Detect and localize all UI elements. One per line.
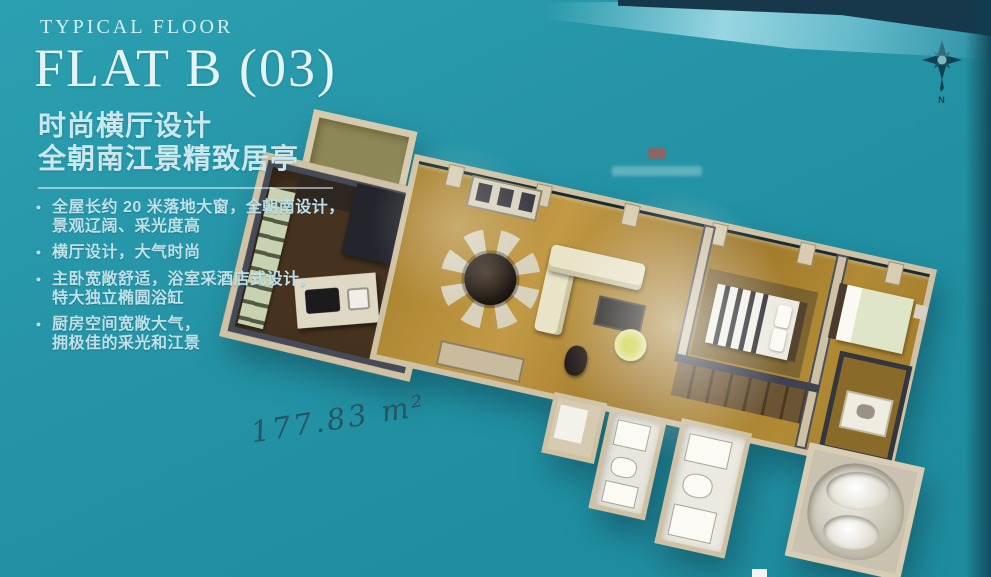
feature-list: • 全屋长约 20 米落地大窗，全朝南设计， 景观辽阔、采光度高 • 横厅设计，… [36, 198, 394, 353]
feature-text: 特大独立椭圆浴缸 [52, 289, 316, 308]
plan-nightstand [913, 304, 928, 320]
plan-bathtub [798, 455, 913, 570]
plan-window-pier [620, 203, 640, 228]
plan-accent-chair [611, 326, 649, 364]
plan-utility-block [541, 392, 607, 464]
eyebrow-label: TYPICAL FLOOR [40, 16, 394, 39]
feature-text: 景观辽阔、采光度高 [52, 217, 345, 236]
plan-master-tub-room [785, 442, 925, 577]
flat-title: FLAT B (03) [34, 41, 394, 95]
poster-photo: TYPICAL FLOOR FLAT B (03) 时尚横厅设计 全朝南江景精致… [0, 0, 991, 577]
feature-item: • 全屋长约 20 米落地大窗，全朝南设计， 景观辽阔、采光度高 [36, 198, 394, 236]
plan-planter [562, 344, 590, 378]
plan-bathroom-b [654, 418, 752, 559]
plan-dining-chairs [431, 220, 550, 339]
plan-master-bed [836, 285, 915, 354]
feature-text: 全屋长约 20 米落地大窗，全朝南设计， [52, 198, 345, 217]
plan-window-pier [796, 242, 816, 267]
plan-vanity [839, 390, 894, 437]
feature-text: 主卧宽敞舒适，浴室采酒店式设计， [52, 270, 316, 289]
subtitle-line-2: 全朝南江景精致居亭 [38, 142, 394, 175]
feature-item: • 厨房空间宽敞大气， 拥极佳的采光和江景 [36, 315, 394, 353]
feature-text: 横厅设计，大气时尚 [52, 243, 201, 262]
feature-item: • 横厅设计，大气时尚 [36, 243, 394, 262]
plan-window-pier [445, 164, 465, 189]
watermark-blurred-text [612, 166, 702, 176]
feature-text: 拥极佳的采光和江景 [52, 334, 201, 353]
photo-dark-corner [618, 0, 991, 36]
compass-rose: N [916, 38, 968, 102]
feature-item: • 主卧宽敞舒适，浴室采酒店式设计， 特大独立椭圆浴缸 [36, 270, 394, 308]
subtitle-line-1: 时尚横厅设计 [38, 109, 394, 142]
plan-dining-table [459, 248, 521, 310]
photo-right-edge [965, 0, 991, 577]
bullet-marker: • [36, 315, 52, 353]
bullet-marker: • [36, 198, 52, 236]
plan-hall-cabinet [466, 175, 543, 222]
divider-line [38, 187, 333, 189]
compass-star-icon [916, 38, 968, 94]
feature-text: 厨房空间宽敞大气， [52, 315, 201, 334]
plan-sideboard [436, 340, 525, 383]
developer-watermark [612, 146, 702, 176]
bullet-marker: • [36, 270, 52, 308]
plan-window-pier [884, 261, 904, 286]
compass-n-label: N [916, 95, 968, 105]
info-panel: TYPICAL FLOOR FLAT B (03) 时尚横厅设计 全朝南江景精致… [34, 14, 394, 360]
plan-coffee-table [593, 295, 646, 335]
watermark-logo-mark [648, 148, 666, 159]
photo-bottom-notch [752, 569, 767, 577]
bullet-marker: • [36, 243, 52, 262]
subtitle: 时尚横厅设计 全朝南江景精致居亭 [38, 109, 394, 175]
